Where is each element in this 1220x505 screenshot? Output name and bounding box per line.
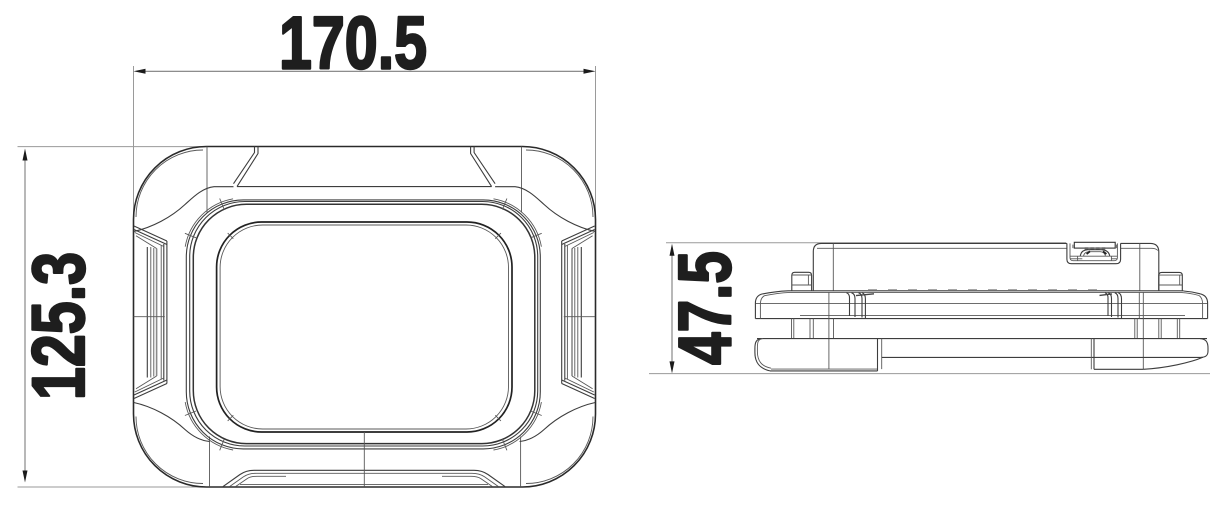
svg-text:170.5: 170.5 [279,2,427,85]
svg-text:125.3: 125.3 [18,252,101,400]
svg-text:47.5: 47.5 [665,251,747,365]
